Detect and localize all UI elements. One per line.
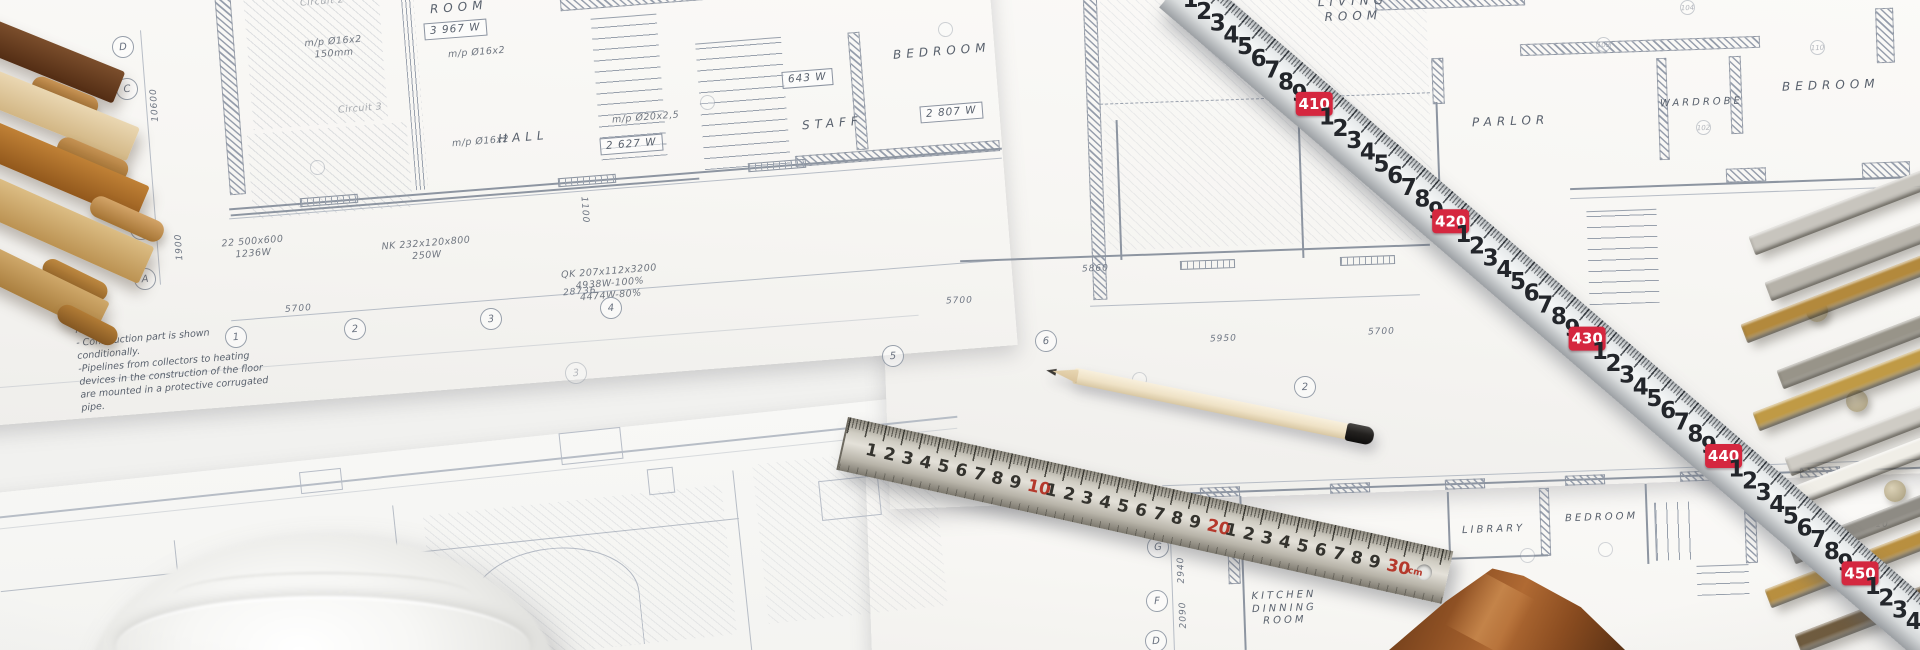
wall-segment <box>1445 478 1485 489</box>
radiator <box>1340 255 1395 266</box>
furniture <box>818 475 882 521</box>
ruler-number: 6 <box>1133 500 1149 522</box>
staircase <box>1696 564 1749 596</box>
ruler-number: 6 <box>1313 539 1329 561</box>
ruler-number: 5 <box>1295 535 1311 557</box>
ruler-number: 3 <box>1259 527 1275 549</box>
dimension-value: 5700 <box>946 296 973 307</box>
ruler-number: 5 <box>1115 496 1131 518</box>
ruler-number: 1 <box>1043 480 1059 502</box>
dimension-value: 5700 <box>285 303 313 315</box>
ruler-number: 7 <box>1331 543 1347 565</box>
ruler-number: 2 <box>1241 523 1257 545</box>
note-block: Note: - Construction part is shown condi… <box>75 306 306 414</box>
staircase <box>1654 501 1700 561</box>
ruler-number: 8 <box>1169 508 1185 530</box>
room-label: PARLOR <box>1472 113 1550 131</box>
dimension-value: 1100 <box>579 196 591 224</box>
ruler-number: 7 <box>971 464 987 486</box>
room-label: LIVING ROOM <box>1317 0 1388 25</box>
wall-segment <box>1875 8 1895 64</box>
ruler-number: 9 <box>1367 551 1383 573</box>
grid-bubble: D <box>1145 630 1168 650</box>
photo-scene: 3 Circuit 2 m/p Ø16x2 150mm ROOM 3 967 W… <box>0 0 1920 650</box>
ruler-number: 9 <box>1187 512 1203 534</box>
ruler-number: 3 <box>900 448 916 470</box>
ruler-unit-label: cm <box>1407 566 1424 579</box>
room-label: LIBRARY <box>1462 523 1526 538</box>
dimension-value: 2090 <box>1178 601 1189 628</box>
ruler-number: 6 <box>953 460 969 482</box>
dimension-value: 2940 <box>1176 556 1187 583</box>
dimension-value: 5950 <box>1210 334 1237 345</box>
pipe-label: m/p Ø16x2 150mm <box>304 34 363 62</box>
radiator-spec: 22 500x600 1236W <box>221 234 285 263</box>
ruler-number: 9 <box>1007 472 1023 494</box>
ruler-number: 4 <box>1277 531 1293 553</box>
staircase <box>1586 209 1659 305</box>
furniture <box>647 467 676 496</box>
ruler-number: 1 <box>864 440 880 462</box>
dimension-value: 5700 <box>1368 327 1395 338</box>
ruler-number: 4 <box>917 452 933 474</box>
ruler-number: 8 <box>989 468 1005 490</box>
wall-segment <box>1565 474 1605 485</box>
wooden-dowel <box>1884 480 1906 502</box>
tape-number: 4 <box>1906 609 1920 635</box>
wall-segment <box>1726 167 1766 182</box>
ruler-number: 7 <box>1151 504 1167 526</box>
ruler-number: 4 <box>1097 492 1113 514</box>
ruler-number: 2 <box>1061 484 1077 506</box>
wall-segment <box>1330 482 1370 493</box>
furniture <box>299 468 343 494</box>
ruler-number: 3 <box>1079 488 1095 510</box>
room-label: BEDROOM <box>1565 511 1639 526</box>
radiator <box>1180 259 1235 270</box>
wall-segment <box>1431 58 1445 104</box>
dimension-value: 5860 <box>1082 264 1109 275</box>
ruler-number: 2 <box>882 444 898 466</box>
furniture <box>558 427 623 465</box>
room-label: KITCHEN DINNING ROOM <box>1251 589 1317 629</box>
dimension-value: 1900 <box>174 233 186 261</box>
ruler-number: 5 <box>935 456 951 478</box>
hard-hat-seam <box>173 572 474 620</box>
ruler-number: 8 <box>1349 547 1365 569</box>
